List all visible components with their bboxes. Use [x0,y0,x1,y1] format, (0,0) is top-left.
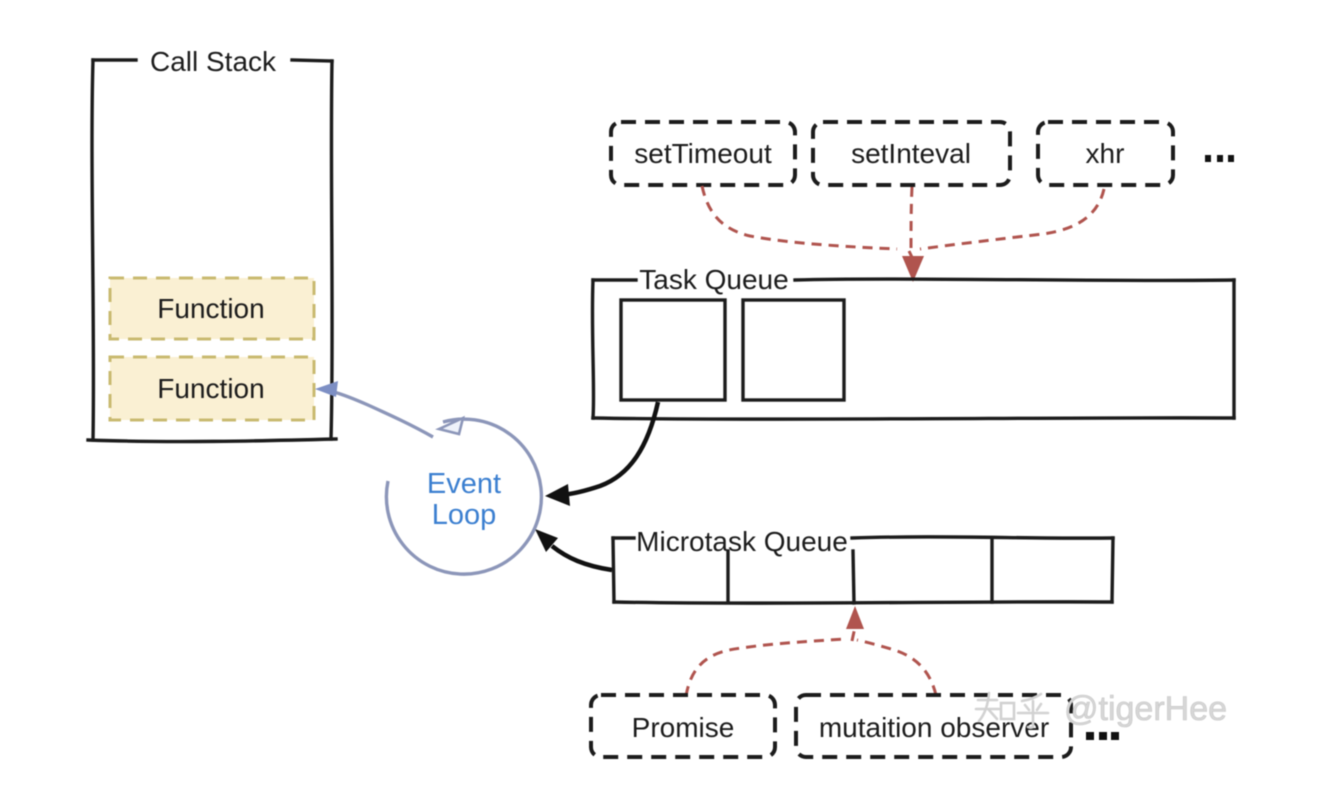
svg-text:Event: Event [427,468,501,500]
svg-text:Call Stack: Call Stack [150,46,277,77]
svg-text:Function: Function [157,373,264,404]
svg-text:Task Queue: Task Queue [639,264,788,295]
svg-text:setTimeout: setTimeout [634,138,772,169]
svg-text:Promise: Promise [632,712,735,743]
svg-text:xhr: xhr [1086,138,1125,169]
svg-text:Loop: Loop [432,499,497,531]
svg-text:Function: Function [157,293,264,324]
svg-text:Microtask Queue: Microtask Queue [636,526,848,557]
svg-text:@tigerHee: @tigerHee [1064,690,1227,728]
svg-text:setInteval: setInteval [851,138,971,169]
